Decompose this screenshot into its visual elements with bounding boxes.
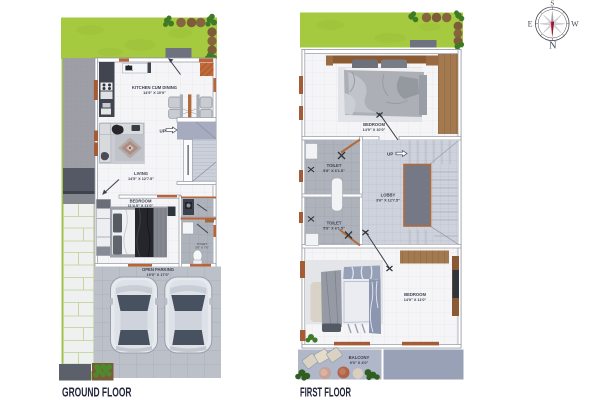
svg-text:14'9" X 10'0": 14'9" X 10'0": [363, 128, 386, 132]
svg-text:5'8" X 6'1.5": 5'8" X 6'1.5": [323, 227, 345, 231]
svg-text:E: E: [528, 20, 533, 29]
svg-text:UP: UP: [160, 128, 166, 133]
svg-text:KITCHEN CUM DINING: KITCHEN CUM DINING: [132, 85, 177, 90]
svg-text:5'0" X 7'6": 5'0" X 7'6": [195, 246, 209, 250]
svg-text:W: W: [571, 20, 579, 29]
svg-text:N: N: [549, 40, 557, 51]
svg-text:LOBBY: LOBBY: [381, 193, 396, 198]
svg-text:BEDROOM: BEDROOM: [130, 198, 152, 203]
svg-text:S: S: [550, 0, 554, 8]
svg-text:BEDROOM: BEDROOM: [363, 122, 385, 127]
svg-text:BALCONY: BALCONY: [349, 355, 370, 360]
svg-text:GROUND FLOOR: GROUND FLOOR: [62, 385, 132, 400]
svg-text:19'0" X 17'0": 19'0" X 17'0": [147, 273, 170, 277]
svg-text:5'8" X 6'1.5": 5'8" X 6'1.5": [323, 169, 345, 173]
svg-text:14'9" X 10'0": 14'9" X 10'0": [143, 91, 166, 95]
svg-text:BEDROOM: BEDROOM: [404, 292, 426, 297]
svg-text:LIVING: LIVING: [134, 171, 148, 176]
svg-text:TOILET: TOILET: [327, 163, 342, 168]
svg-text:OPEN PARKING: OPEN PARKING: [142, 267, 174, 272]
svg-text:FIRST FLOOR: FIRST FLOOR: [300, 385, 351, 400]
svg-text:UP: UP: [387, 152, 393, 157]
svg-text:11'4.5" X 11'0": 11'4.5" X 11'0": [128, 204, 154, 208]
svg-text:9'0" X 4'0": 9'0" X 4'0": [350, 361, 369, 365]
svg-text:3'6" X 12'7.5": 3'6" X 12'7.5": [376, 199, 400, 203]
svg-text:TOILET: TOILET: [327, 221, 342, 226]
svg-text:14'9" X 11'0": 14'9" X 11'0": [404, 298, 427, 302]
svg-text:14'5" X 12'7.5": 14'5" X 12'7.5": [128, 177, 154, 181]
